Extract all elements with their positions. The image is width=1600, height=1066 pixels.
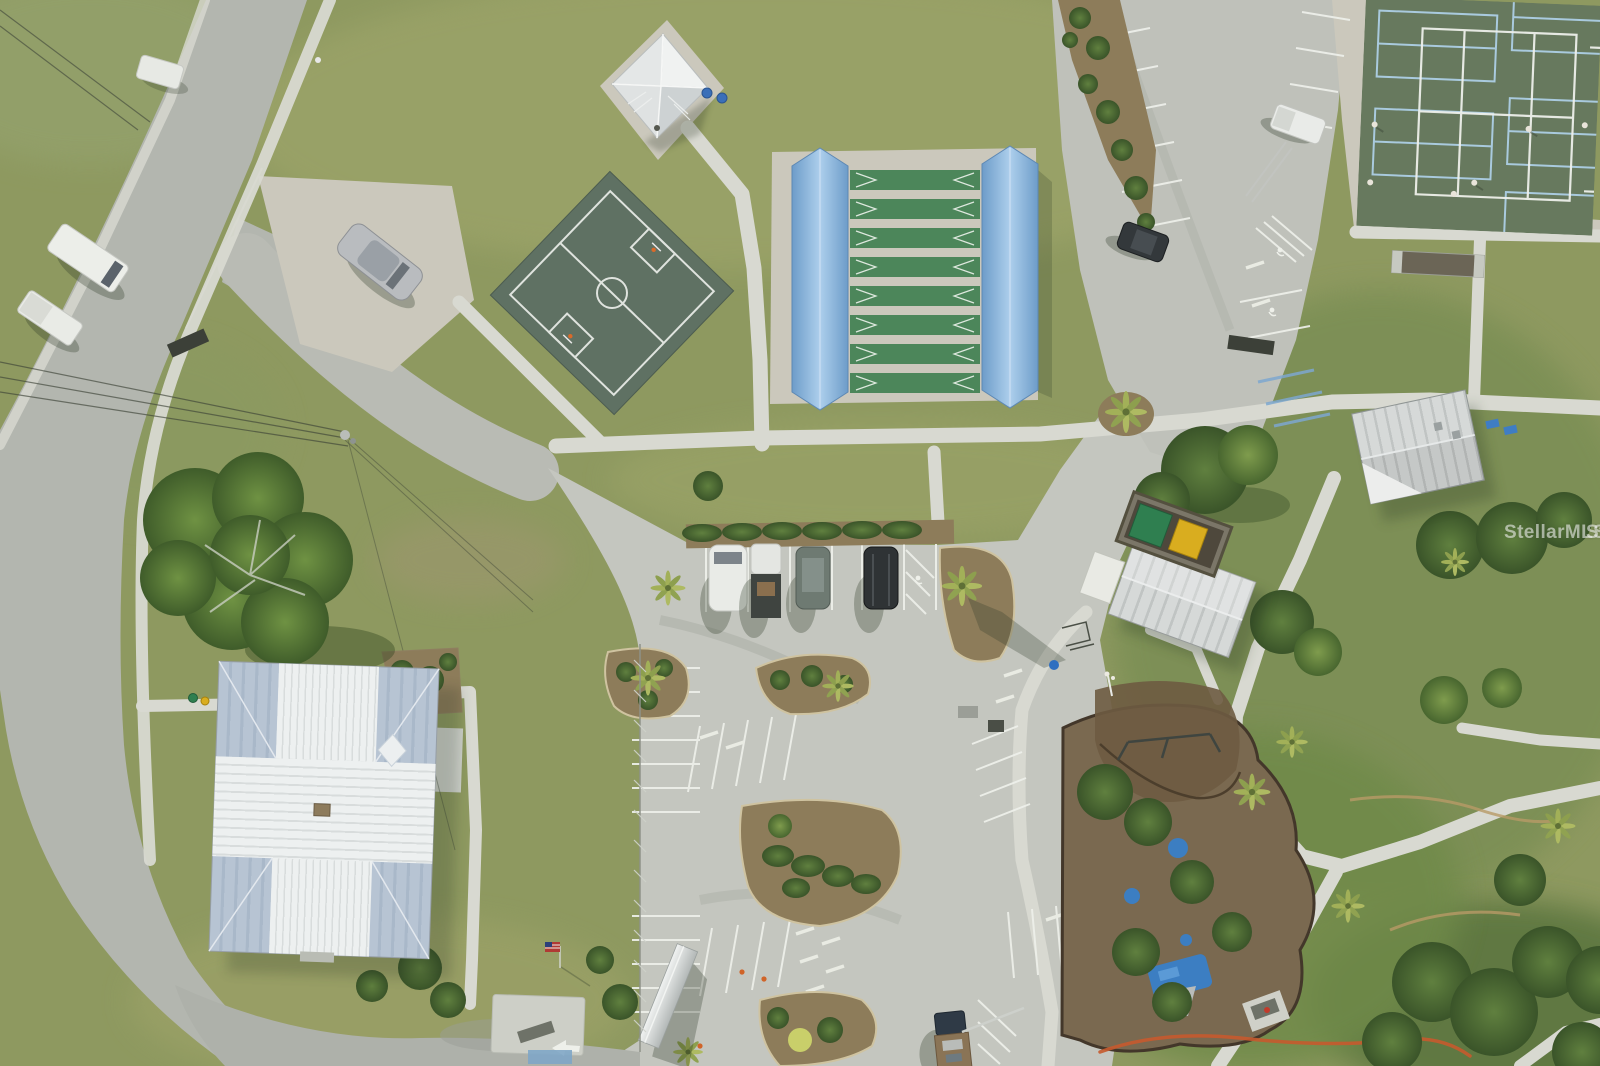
blue-tarp <box>528 1050 572 1064</box>
us-flag <box>545 942 560 952</box>
chimney <box>314 804 330 817</box>
stellar-mls-watermark-tile: StellarMLS <box>1586 522 1600 544</box>
post-marker <box>315 57 321 63</box>
benches-planter-row <box>1391 251 1484 278</box>
blue-trash-can <box>717 93 727 103</box>
planter-box <box>958 706 978 718</box>
blue-trash-can <box>702 88 712 98</box>
blue-barrel <box>1049 660 1059 670</box>
tennis-pickleball-courts <box>1356 0 1600 257</box>
dark-bin <box>988 720 1004 732</box>
green-can <box>189 694 198 703</box>
yellow-can <box>201 697 209 705</box>
utility-pole <box>340 430 350 440</box>
aerial-photo: StellarMLS StellarMLS <box>0 0 1600 1066</box>
person-red-shirt <box>1264 1007 1270 1013</box>
aerial-scene <box>0 0 1600 1066</box>
